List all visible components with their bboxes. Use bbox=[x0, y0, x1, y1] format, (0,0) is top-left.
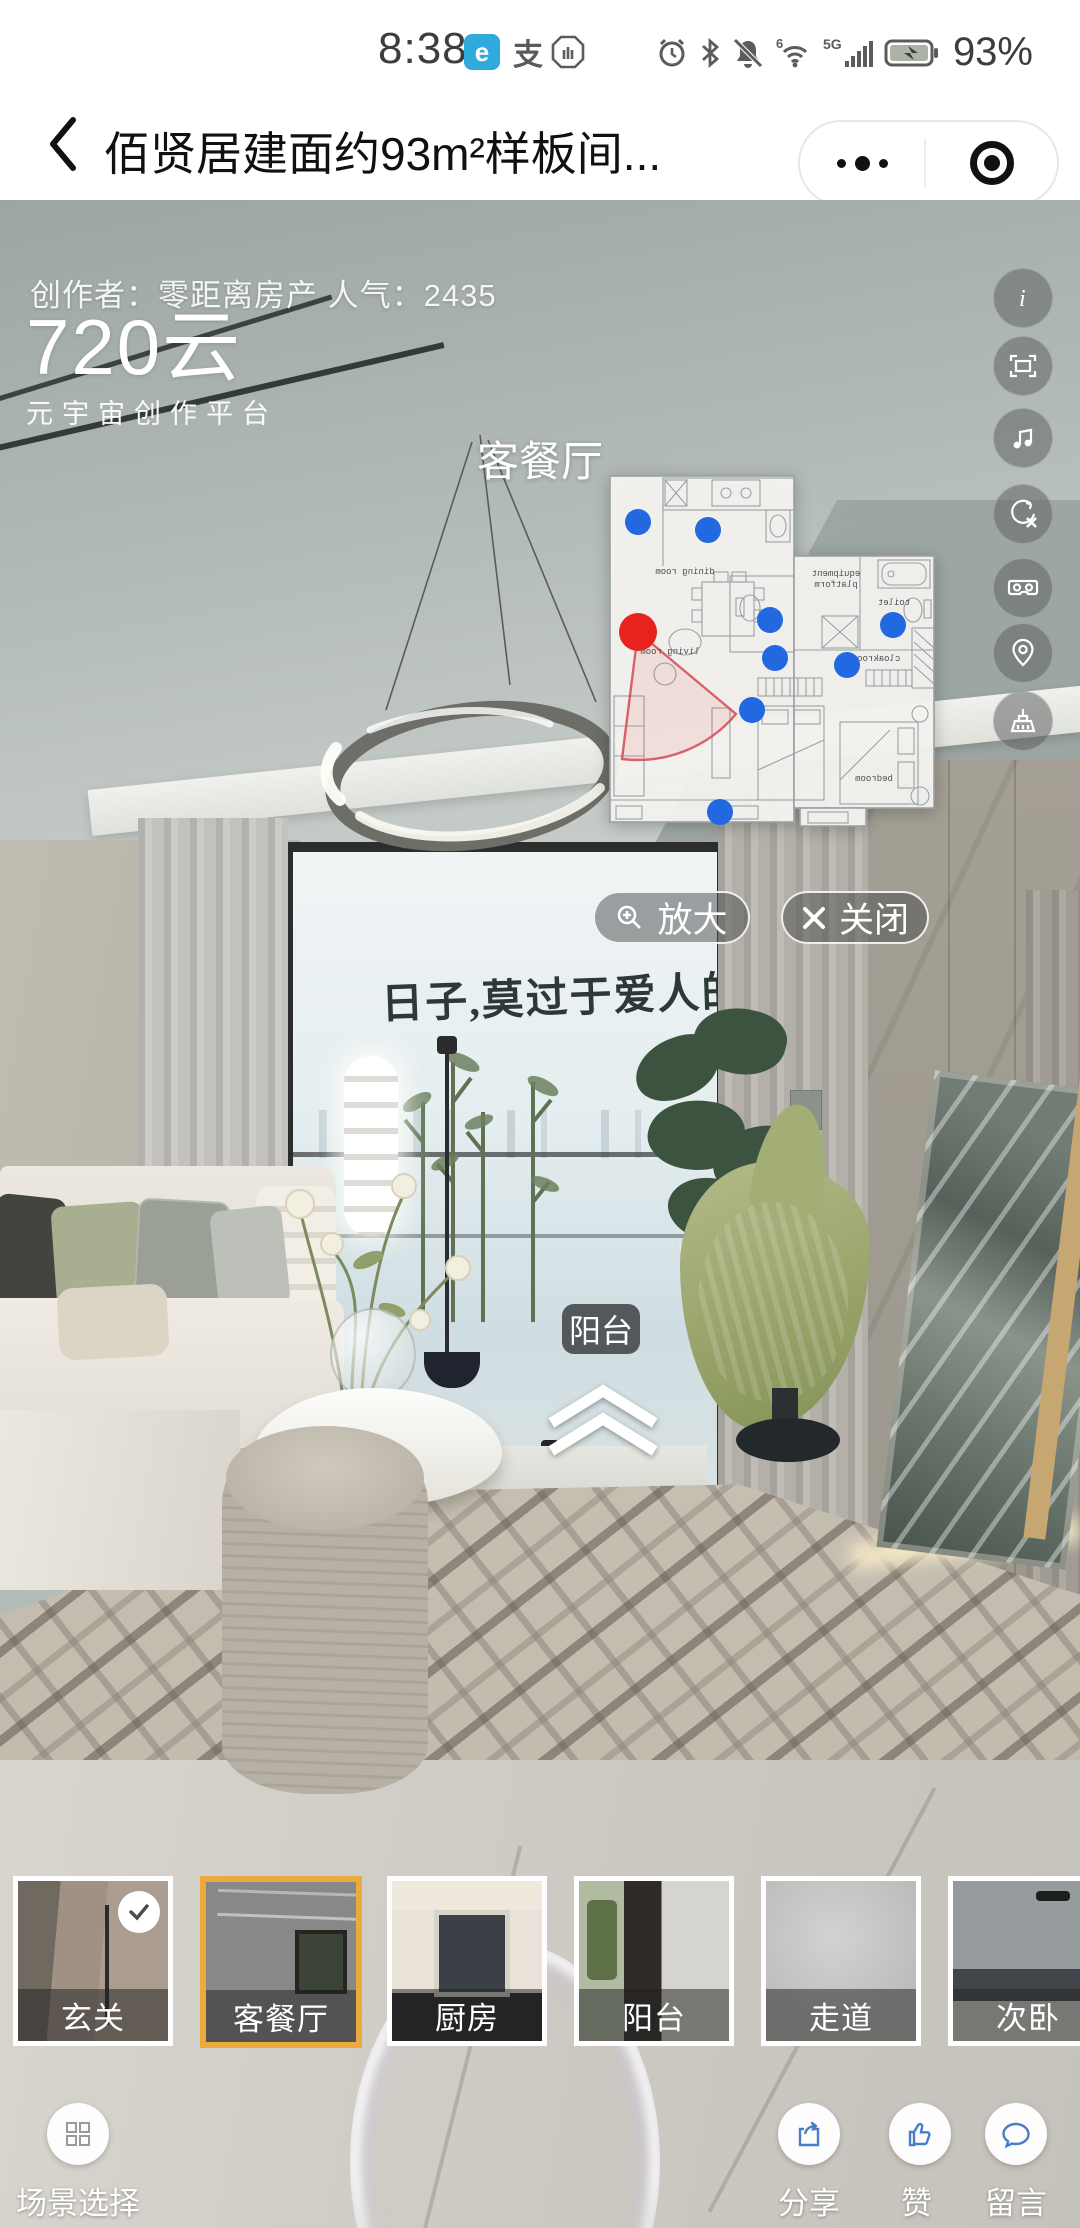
thumb-kecanting-selected[interactable]: 客餐厅 bbox=[200, 1876, 362, 2048]
miniprogram-capsule bbox=[798, 120, 1059, 206]
app-screen: 8:38 e 支 6 5G 93% 佰贤居建面约93m²样板间... bbox=[0, 0, 1080, 2228]
scene-dot[interactable] bbox=[757, 607, 783, 633]
current-position-dot bbox=[619, 613, 657, 651]
hotspot-balcony[interactable]: 阳台 bbox=[562, 1304, 640, 1354]
vr-button[interactable] bbox=[993, 558, 1053, 618]
zoom-in-button[interactable]: 放大 bbox=[593, 891, 750, 944]
info-icon: i bbox=[1019, 286, 1026, 312]
back-chevron-icon bbox=[45, 114, 79, 174]
alarm-icon bbox=[655, 36, 689, 70]
magnifier-plus-icon bbox=[615, 903, 645, 933]
exit-target-icon bbox=[970, 141, 1014, 185]
info-button[interactable]: i bbox=[993, 268, 1053, 328]
5g-signal-icon: 5G bbox=[823, 35, 875, 71]
room-label: equipment bbox=[812, 569, 861, 579]
visited-check-badge bbox=[118, 1891, 160, 1933]
exit-miniprogram-button[interactable] bbox=[926, 141, 1057, 185]
scene-select-label: 场景选择 bbox=[16, 2178, 140, 2223]
music-icon bbox=[1007, 422, 1039, 454]
music-button[interactable] bbox=[993, 408, 1053, 468]
room-label: bedroom bbox=[855, 774, 893, 784]
room-label: dining room bbox=[655, 567, 714, 577]
pillow-beige bbox=[56, 1283, 170, 1361]
room-label: platform bbox=[814, 580, 857, 590]
close-label: 关闭 bbox=[839, 892, 909, 943]
e-app-icon: e bbox=[464, 34, 500, 70]
battery-charging-icon bbox=[884, 36, 940, 70]
clean-view-icon bbox=[1007, 705, 1039, 737]
status-icons: 6 5G 93% bbox=[655, 30, 1033, 75]
thumb-label: 客餐厅 bbox=[206, 1990, 356, 2042]
comment-icon bbox=[999, 2117, 1033, 2151]
thumb-label: 厨房 bbox=[392, 1989, 542, 2041]
fabric-ottoman bbox=[222, 1432, 428, 1794]
bluetooth-icon bbox=[698, 36, 722, 70]
share-label: 分享 bbox=[778, 2178, 840, 2223]
clean-view-button[interactable] bbox=[993, 691, 1053, 751]
thumb-ciwo[interactable]: 次卧 bbox=[948, 1876, 1080, 2046]
status-bar: 8:38 e 支 6 5G 93% bbox=[0, 0, 1080, 92]
thumbs-up-icon bbox=[903, 2117, 937, 2151]
fullscreen-icon bbox=[1007, 350, 1039, 382]
scene-dot[interactable] bbox=[707, 799, 733, 825]
floorplan-minimap[interactable]: dining roomliving roomequipmentplatformt… bbox=[608, 470, 940, 828]
thumb-yangtai[interactable]: 阳台 bbox=[574, 1876, 734, 2046]
palm-icon bbox=[550, 34, 586, 70]
battery-percent: 93% bbox=[953, 30, 1033, 75]
close-minimap-button[interactable]: 关闭 bbox=[781, 891, 929, 944]
scene-dot[interactable] bbox=[880, 612, 906, 638]
thumb-chufang[interactable]: 厨房 bbox=[387, 1876, 547, 2046]
scene-dot[interactable] bbox=[739, 697, 765, 723]
autorotate-off-button[interactable] bbox=[993, 484, 1053, 544]
mute-icon bbox=[731, 36, 765, 70]
zoom-in-label: 放大 bbox=[657, 892, 727, 943]
panorama-viewport[interactable]: 日子,莫过于爱人的陪伴 bbox=[0, 200, 1080, 2228]
room-label: toilet bbox=[878, 598, 910, 608]
autorotate-off-icon bbox=[1006, 497, 1040, 531]
room-label: living room bbox=[640, 647, 699, 657]
wifi6-icon: 6 bbox=[774, 36, 814, 70]
comment-label: 留言 bbox=[985, 2178, 1047, 2223]
alipay-icon: 支 bbox=[510, 34, 546, 70]
scene-dot[interactable] bbox=[762, 645, 788, 671]
comment-button[interactable] bbox=[985, 2103, 1047, 2165]
navigate-forward-arrow[interactable] bbox=[546, 1382, 660, 1456]
glass-vase bbox=[330, 1308, 416, 1400]
scene-thumbnails: 玄关 客餐厅 厨房 阳台 走道 次卧 bbox=[0, 1876, 1080, 2052]
scene-select-button[interactable] bbox=[47, 2103, 109, 2165]
thumb-label: 次卧 bbox=[953, 1989, 1080, 2041]
page-title: 佰贤居建面约93m²样板间... bbox=[104, 118, 661, 184]
back-button[interactable] bbox=[34, 108, 90, 180]
nav-bar: 佰贤居建面约93m²样板间... bbox=[0, 92, 1080, 200]
svg-text:5G: 5G bbox=[823, 36, 842, 52]
grid-icon bbox=[61, 2117, 95, 2151]
vr-glasses-icon bbox=[1006, 571, 1040, 605]
logo-subtitle: 元宇宙创作平台 bbox=[26, 392, 278, 431]
fullscreen-button[interactable] bbox=[993, 336, 1053, 396]
like-button[interactable] bbox=[889, 2103, 951, 2165]
wifi-standard-badge: 6 bbox=[776, 36, 783, 51]
share-button[interactable] bbox=[778, 2103, 840, 2165]
location-icon bbox=[1007, 637, 1039, 669]
scene-dot[interactable] bbox=[834, 652, 860, 678]
check-icon bbox=[127, 1900, 151, 1924]
thumb-label: 玄关 bbox=[18, 1989, 168, 2041]
chair-base bbox=[736, 1418, 840, 1462]
scene-dot[interactable] bbox=[695, 517, 721, 543]
location-button[interactable] bbox=[993, 623, 1053, 683]
thumb-xuanguan[interactable]: 玄关 bbox=[13, 1876, 173, 2046]
share-icon bbox=[792, 2117, 826, 2151]
clock: 8:38 bbox=[378, 24, 468, 74]
720yun-logo: 720云 元宇宙创作平台 bbox=[26, 308, 278, 431]
sofa-chaise bbox=[0, 1410, 240, 1590]
thumb-zoudao[interactable]: 走道 bbox=[761, 1876, 921, 2046]
logo-text: 720云 bbox=[26, 308, 278, 386]
thumb-label: 走道 bbox=[766, 1989, 916, 2041]
scene-dot[interactable] bbox=[625, 509, 651, 535]
close-x-icon bbox=[801, 905, 827, 931]
thumb-label: 阳台 bbox=[579, 1989, 729, 2041]
like-label: 赞 bbox=[901, 2178, 932, 2223]
more-menu-button[interactable] bbox=[800, 156, 924, 171]
